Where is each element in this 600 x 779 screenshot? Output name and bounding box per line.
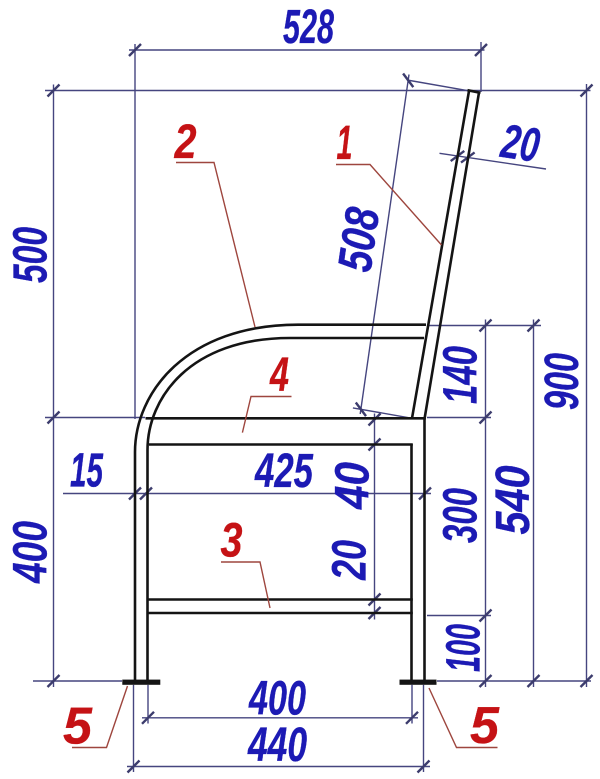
svg-text:425: 425 (254, 445, 314, 498)
svg-text:508: 508 (329, 204, 391, 275)
svg-text:1: 1 (337, 117, 353, 170)
svg-text:500: 500 (5, 227, 58, 283)
svg-text:540: 540 (487, 465, 540, 534)
svg-text:5: 5 (63, 698, 93, 756)
svg-text:400: 400 (5, 521, 58, 584)
svg-text:100: 100 (438, 624, 491, 672)
svg-text:900: 900 (536, 353, 589, 410)
svg-text:140: 140 (435, 346, 488, 404)
svg-text:300: 300 (435, 488, 488, 543)
svg-text:440: 440 (247, 719, 307, 772)
svg-text:400: 400 (248, 673, 306, 726)
svg-text:2: 2 (174, 116, 197, 169)
svg-text:3: 3 (221, 515, 243, 568)
svg-text:4: 4 (269, 349, 289, 402)
svg-text:528: 528 (283, 1, 334, 54)
svg-text:15: 15 (70, 445, 104, 498)
svg-text:20: 20 (497, 115, 543, 173)
svg-text:40: 40 (327, 462, 380, 510)
svg-text:5: 5 (470, 697, 500, 755)
svg-text:20: 20 (324, 540, 377, 581)
